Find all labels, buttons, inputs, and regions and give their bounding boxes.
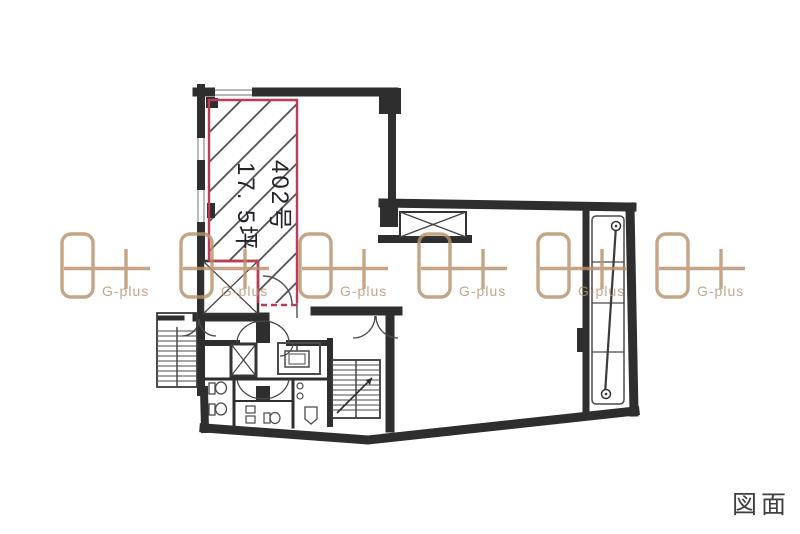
vestibule-doors-upper <box>237 321 289 343</box>
gplus-logo-icon <box>300 234 331 297</box>
washroom <box>278 343 320 374</box>
watermark-text: G-plus <box>459 283 506 299</box>
urinal-icon <box>305 407 317 424</box>
watermark-text: G-plus <box>102 283 149 299</box>
unit-402-area-label: 17. 5坪 <box>232 162 259 251</box>
stairs-external <box>157 313 197 387</box>
watermark-text: G-plus <box>578 283 625 299</box>
watermark-row: G-plus G-plus G-plus G-plus G-plus <box>62 234 745 299</box>
vestibule-doors-lower <box>237 379 289 401</box>
gplus-logo-icon <box>538 234 569 297</box>
gplus-logo-icon <box>62 234 93 297</box>
service-shaft-right <box>592 216 624 404</box>
watermark-text: G-plus <box>221 283 268 299</box>
watermark-text: G-plus <box>340 283 387 299</box>
figure-type-label: 図面 <box>732 491 790 519</box>
floor-plan-page: 402号 17. 5坪 <box>0 0 800 534</box>
watermark-gplus-4: G-plus <box>419 234 507 299</box>
stairs-internal <box>332 360 380 418</box>
watermark-gplus-3: G-plus <box>300 234 388 299</box>
floor-plan-drawing: 402号 17. 5坪 <box>0 0 800 534</box>
watermark-gplus-6: G-plus <box>657 234 745 299</box>
watermark-text: G-plus <box>697 283 744 299</box>
unit-402-number-label: 402号 <box>266 160 293 232</box>
elevator-core <box>231 344 256 376</box>
watermark-gplus-1: G-plus <box>62 234 150 299</box>
gplus-logo-icon <box>419 234 450 297</box>
gplus-logo-icon <box>657 234 688 297</box>
